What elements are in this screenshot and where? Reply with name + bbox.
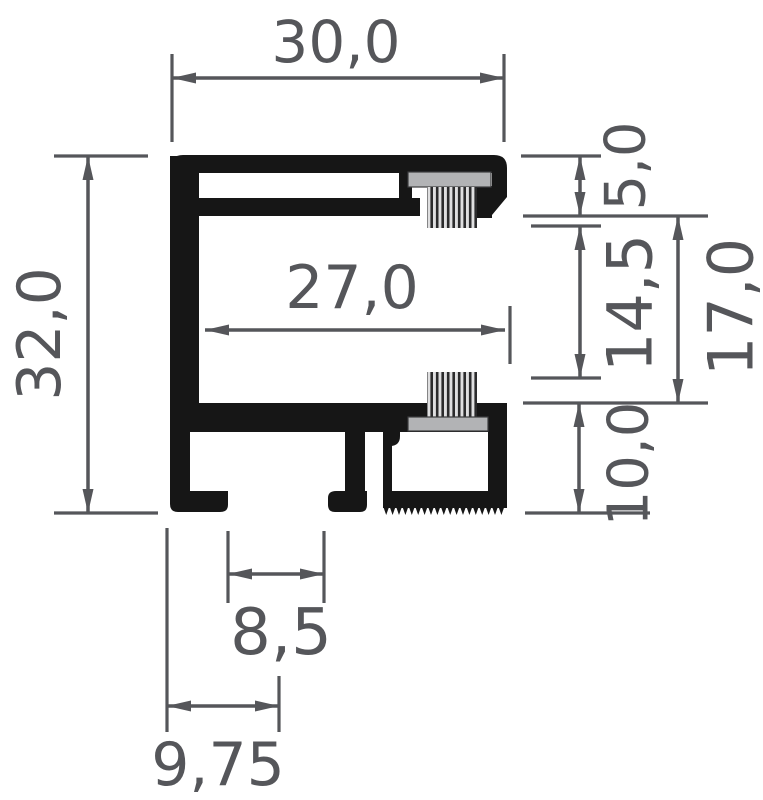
top-brush-bristles — [427, 187, 477, 228]
profile-box-fillet — [383, 430, 400, 446]
dimension-overall-height: 32,0 — [5, 156, 158, 513]
dimension-label-slot-width: 8,5 — [230, 596, 332, 670]
dimension-label-brush-opening: 14,5 — [594, 234, 667, 372]
dimension-side-opening: 17,0 — [673, 216, 763, 403]
bottom-brush-seal — [408, 372, 488, 431]
dimension-slot-width: 8,5 — [228, 531, 332, 670]
dimension-top-section: 5,0 — [521, 121, 708, 216]
drawing-canvas: 30,0 32,0 27,0 5,0 14,5 — [0, 0, 763, 800]
dimension-label-overall-height: 32,0 — [5, 267, 75, 401]
bottom-brush-bristles — [427, 372, 477, 418]
profile-serrated-edge — [383, 506, 505, 515]
profile-left-wall — [170, 156, 199, 432]
dimension-inner-width: 27,0 — [205, 253, 510, 364]
profile-left-foot — [170, 491, 228, 512]
profile-middle-foot-stem — [345, 430, 365, 491]
profile-middle-foot — [328, 491, 367, 512]
dimension-bottom-section: 10,0 — [523, 402, 708, 527]
dimension-label-bottom-section: 10,0 — [597, 402, 662, 527]
dimension-brush-opening: 14,5 — [531, 226, 667, 378]
profile-box-floor — [383, 491, 507, 508]
dimension-overall-width: 30,0 — [172, 8, 504, 142]
profile-top-channel-bar — [199, 198, 420, 216]
dimension-label-top-section: 5,0 — [594, 121, 659, 210]
profile-left-wall-lower — [170, 430, 190, 492]
bottom-brush-holder — [408, 417, 488, 431]
dimension-label-side-opening: 17,0 — [695, 238, 763, 376]
top-brush-holder — [408, 172, 491, 187]
profile-top-hook — [476, 186, 492, 218]
dimension-label-slot-offset: 9,75 — [151, 730, 285, 800]
dimension-label-overall-width: 30,0 — [271, 8, 400, 76]
technical-drawing: 30,0 32,0 27,0 5,0 14,5 — [0, 0, 763, 800]
dimension-label-inner-width: 27,0 — [285, 253, 419, 323]
